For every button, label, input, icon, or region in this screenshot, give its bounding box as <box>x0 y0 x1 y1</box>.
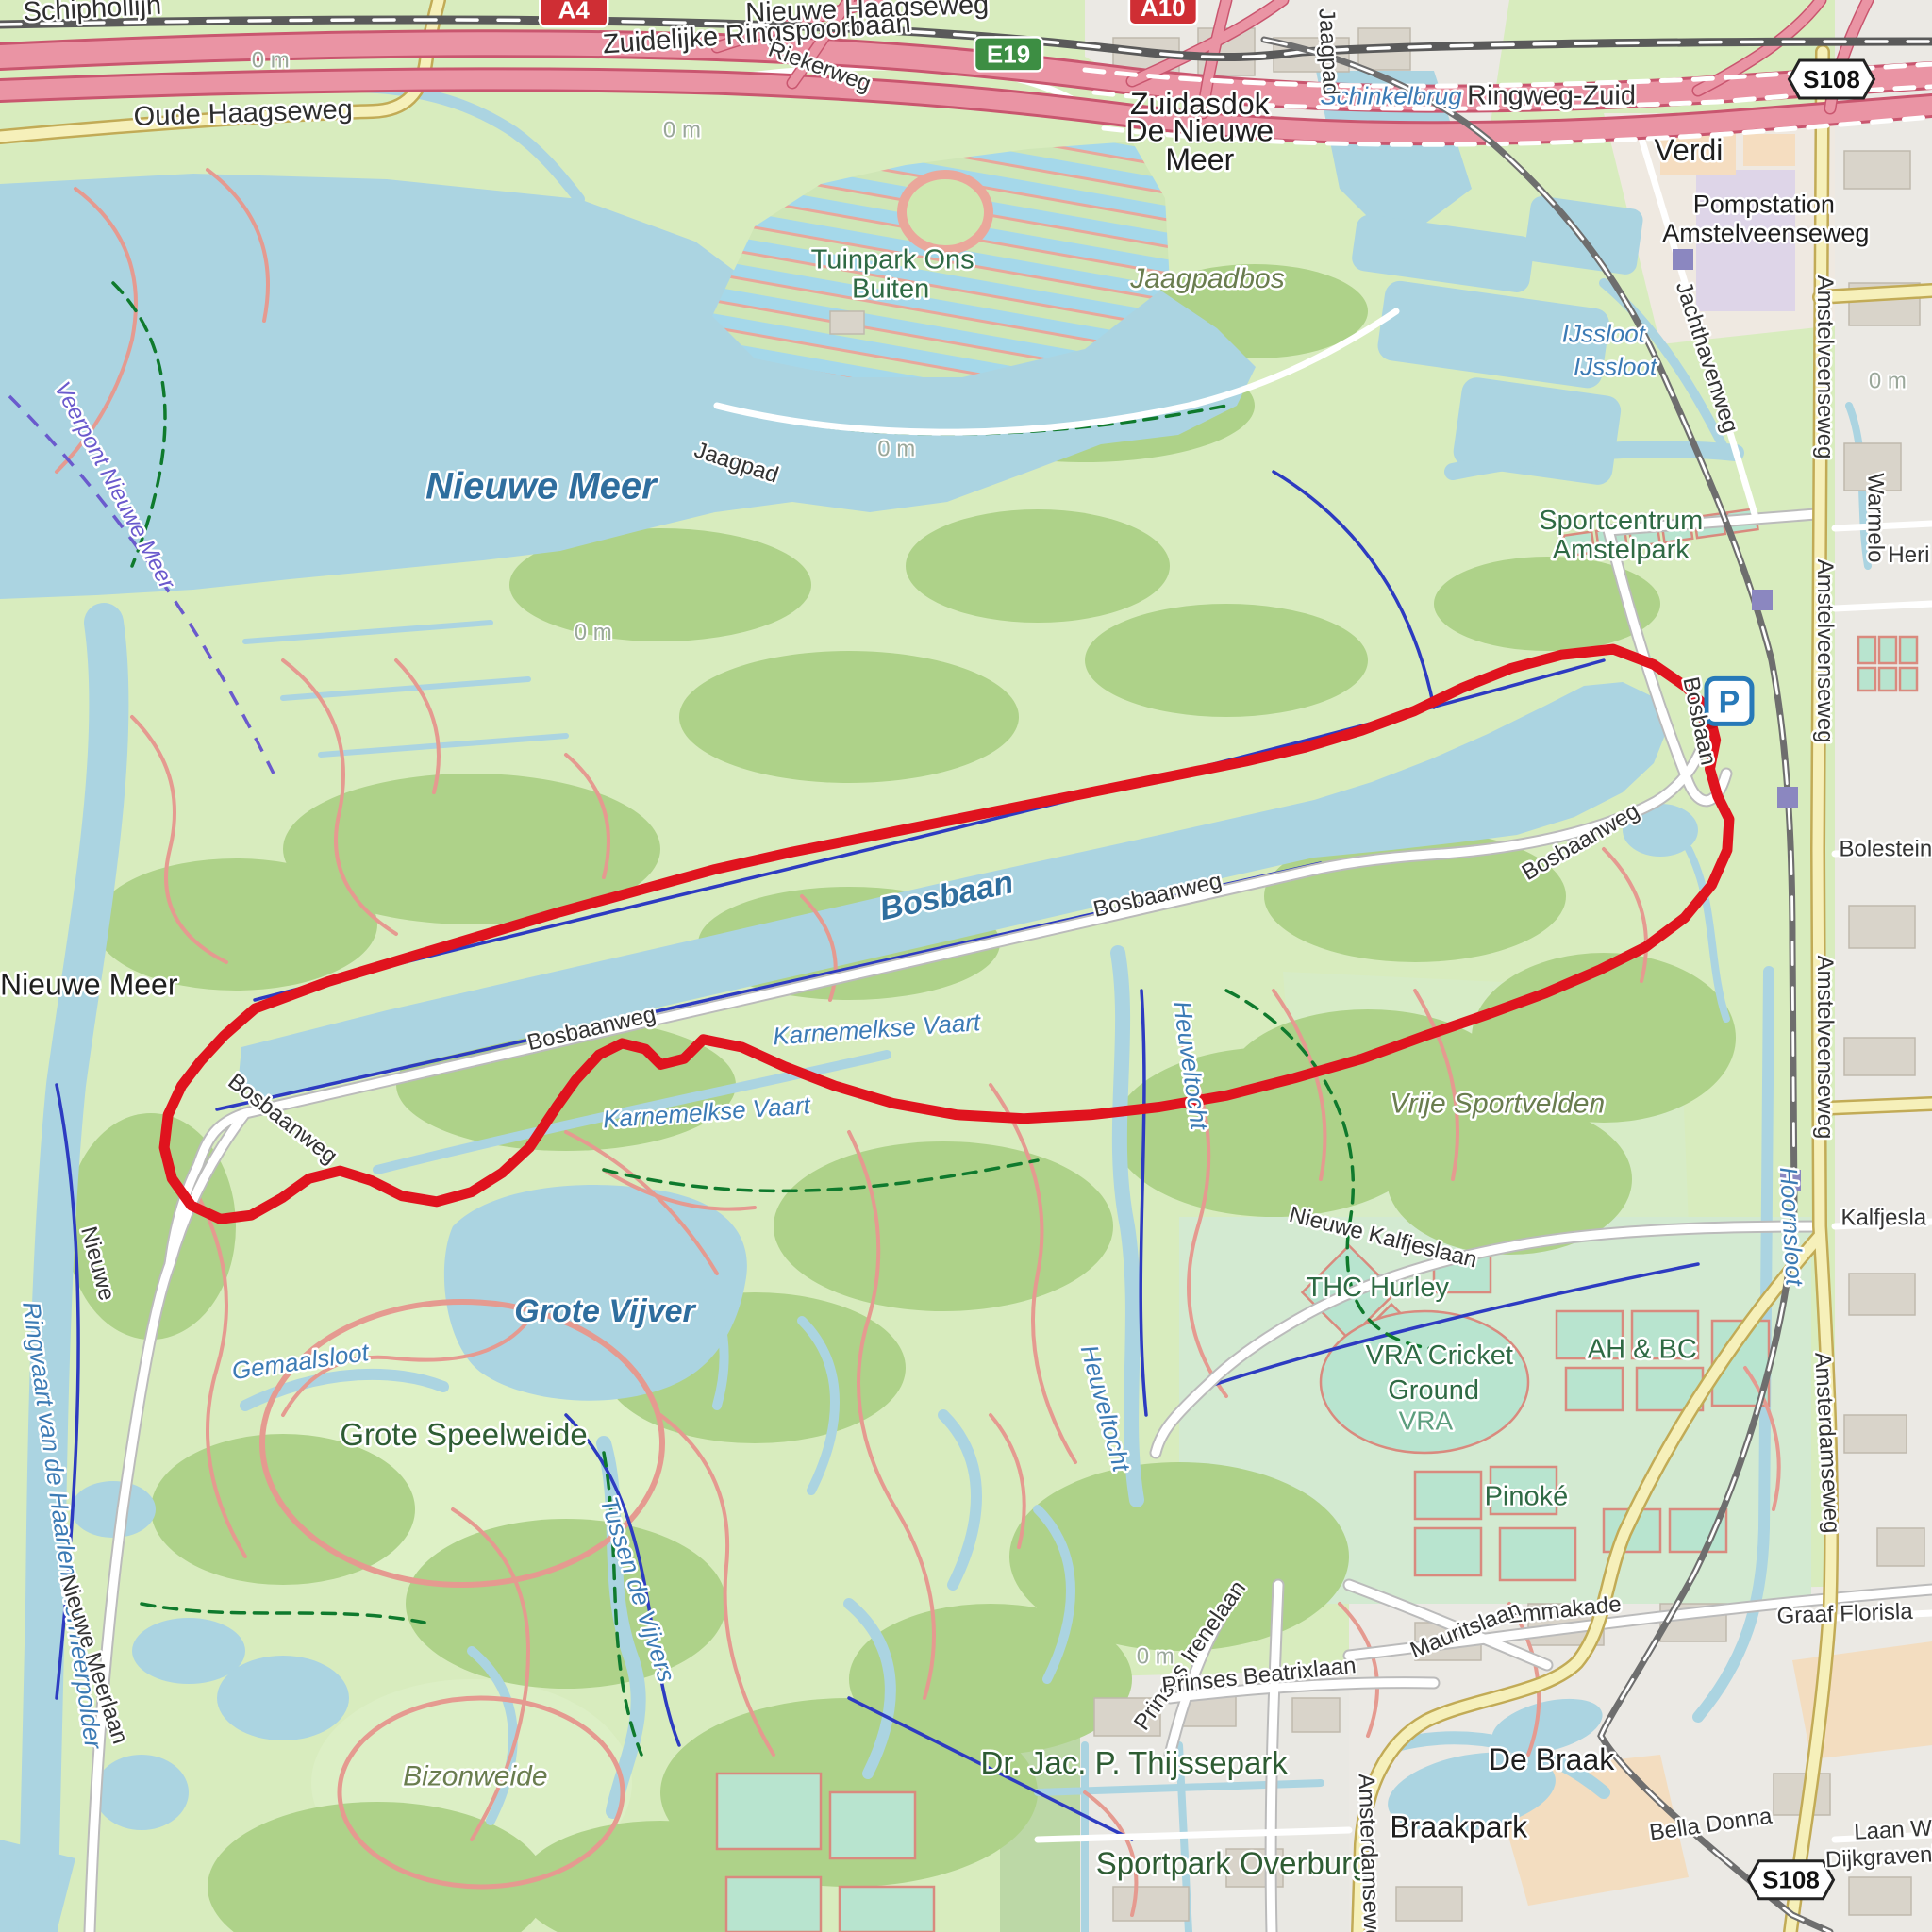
map-label: Buiten <box>852 274 929 304</box>
road-shield: S108 <box>1790 60 1874 98</box>
map-label: 0 m <box>1869 369 1907 394</box>
map-label: Pompstation <box>1693 190 1835 218</box>
map-label: 0 m <box>877 436 915 461</box>
map-label: VRA <box>1399 1407 1454 1436</box>
map-label: 0 m <box>575 620 612 645</box>
svg-text:E19: E19 <box>987 40 1030 68</box>
map-label: Grote Vijver <box>514 1293 696 1329</box>
map-label: Grote Speelweide <box>340 1417 587 1452</box>
map-label: IJssloot <box>1574 352 1658 380</box>
map-label: IJssloot <box>1562 319 1647 347</box>
map-label: Verdi <box>1654 133 1723 167</box>
map-label: Amstelveenseweg <box>1812 956 1838 1140</box>
road-shield: A10 <box>1129 0 1197 25</box>
map-label: 0 m <box>252 48 290 74</box>
map-label: Tuinpark Ons <box>811 245 974 275</box>
map-label: THC Hurley <box>1306 1273 1449 1303</box>
map-label: Meer <box>1165 142 1234 176</box>
map-label: Nieuwe Meer <box>425 465 658 507</box>
road-shield: S108 <box>1748 1861 1833 1899</box>
map-label: 0 m <box>1137 1643 1174 1669</box>
map-label: Laan W <box>1854 1815 1932 1844</box>
map-label: Jaagpadbos <box>1129 263 1284 294</box>
map-label: Nieuwe Meer <box>0 968 178 1002</box>
map-label: Sportpark Overburg <box>1096 1846 1370 1881</box>
map-label: Pinoké <box>1485 1481 1569 1511</box>
svg-text:S108: S108 <box>1803 65 1860 93</box>
map-label: Amstelveenseweg <box>1662 219 1869 247</box>
map-label: Kalfjesla <box>1840 1205 1926 1230</box>
map-label: Graaf Florisla <box>1776 1599 1914 1629</box>
map-label: Bizonweide <box>403 1760 547 1791</box>
map-label: AH & BC <box>1588 1335 1697 1365</box>
map-label: Warmelo <box>1862 473 1888 562</box>
sports-track <box>902 175 989 250</box>
map-label: Bolestein <box>1839 836 1932 861</box>
map-label: Vrije Sportvelden <box>1390 1089 1605 1120</box>
map-label: Amstelveenseweg <box>1812 559 1838 743</box>
map-label: De Braak <box>1489 1742 1615 1776</box>
map-label: Ringweg-Zuid <box>1467 81 1636 111</box>
road-shield: E19 <box>974 37 1042 71</box>
road-shield: A4 <box>540 0 608 26</box>
map-label: Ground <box>1388 1375 1479 1406</box>
map-label: Amsterdamseweg <box>1353 1774 1385 1932</box>
map-label: VRA Cricket <box>1366 1341 1513 1371</box>
map-label: Jaagpad <box>1313 8 1343 95</box>
map-label: 0 m <box>663 117 701 142</box>
svg-text:P: P <box>1719 684 1740 720</box>
map-canvas[interactable]: A4A10E19S108S108P SchiphollijnOude Haags… <box>0 0 1932 1932</box>
parking-icon[interactable]: P <box>1707 678 1752 724</box>
svg-text:A10: A10 <box>1141 0 1186 22</box>
map-label: Amstelveenseweg <box>1812 275 1838 459</box>
map-label: Braakpark <box>1390 1810 1528 1844</box>
map-label: Dr. Jac. P. Thijssepark <box>981 1745 1289 1780</box>
svg-text:S108: S108 <box>1762 1866 1820 1894</box>
svg-text:A4: A4 <box>558 0 591 24</box>
map-label: Amstelpark <box>1553 535 1690 565</box>
map-label: Heri <box>1888 542 1929 568</box>
map-label: Sportcentrum <box>1539 506 1703 536</box>
